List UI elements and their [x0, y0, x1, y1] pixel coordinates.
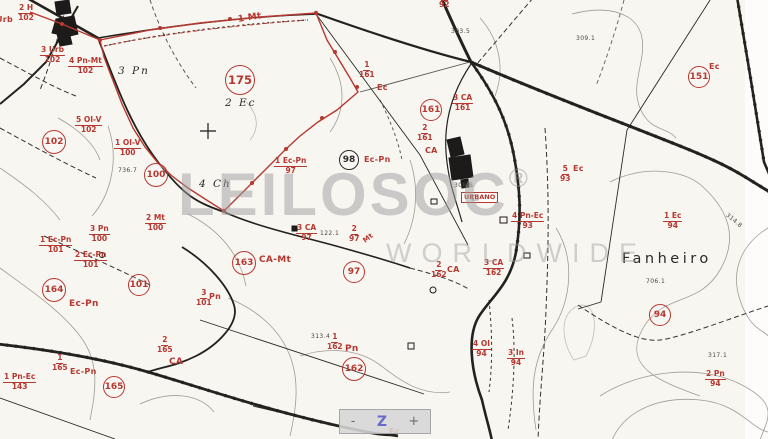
- map-label: 303.5: [451, 29, 470, 35]
- zoom-control: - Z +: [339, 409, 431, 434]
- crop-fraction-label: 4 OI94: [472, 340, 491, 358]
- crop-fraction-label: 192: [439, 0, 449, 9]
- map-label: 309.1: [576, 36, 595, 42]
- parcel-circle-165: 165: [103, 376, 125, 398]
- map-label: 2 Ec: [225, 98, 257, 109]
- parcel-circle-94: 94: [649, 304, 671, 326]
- zoom-out-button[interactable]: -: [345, 415, 362, 428]
- crop-fraction-label: 3 Pn100: [89, 225, 110, 243]
- map-label: 706.1: [646, 279, 665, 285]
- crop-fraction-label: 1 OI-V100: [114, 139, 141, 157]
- map-label: 736.7: [118, 168, 137, 174]
- parcel-circle-163: 163: [232, 251, 256, 275]
- crop-fraction-label: 4 Pn-Mt102: [68, 57, 103, 75]
- parcel-circle-97: 97: [343, 261, 365, 283]
- map-label: Ec-Pn: [70, 368, 97, 376]
- parcel-circle-162: 162: [342, 357, 366, 381]
- map-label: Ec: [377, 84, 388, 92]
- map-label: Pn: [209, 293, 221, 301]
- parcel-circle-101: 101: [128, 274, 150, 296]
- crop-fraction-label: 2 Ec-Pn101: [74, 251, 107, 269]
- crop-fraction-label: 2 Pn94: [705, 370, 726, 388]
- crop-fraction-label: 3 Urb102: [40, 46, 65, 64]
- crop-fraction-label: 5 OI-V102: [75, 116, 102, 134]
- map-label: Ec: [573, 165, 584, 173]
- map-label: Ec: [709, 63, 720, 71]
- crop-fraction-label: 2 Mt100: [145, 214, 166, 232]
- parcel-circle-100: 100: [144, 163, 168, 187]
- crop-fraction-label: 1 Ec94: [663, 212, 682, 230]
- parcel-circle-102: 102: [42, 130, 66, 154]
- map-label: CA-Mt: [259, 256, 291, 265]
- map-label: 317.1: [708, 353, 727, 359]
- map-label: CA: [425, 147, 438, 155]
- parcel-circle-175: 175: [225, 65, 255, 95]
- parcel-circle-161: 161: [420, 99, 442, 121]
- map-label: CA: [169, 358, 183, 367]
- parcel-circle-164: 164: [42, 278, 66, 302]
- registered-mark: ®: [509, 163, 531, 193]
- map-viewport[interactable]: {"":""}: [0, 0, 768, 439]
- crop-fraction-label: 2 H102: [18, 4, 34, 22]
- crop-fraction-label: 1 Pn-Ec143: [3, 373, 36, 391]
- crop-fraction-label: 1161: [359, 61, 375, 79]
- crop-fraction-label: 3 In94: [507, 349, 525, 367]
- watermark-brand: LEILOSOC®: [178, 160, 531, 229]
- zoom-reset-button[interactable]: Z: [371, 415, 393, 429]
- map-label: Ec-Pn: [69, 300, 99, 309]
- map-label: Pn: [345, 345, 359, 354]
- parcel-circle-151: 151: [688, 66, 710, 88]
- map-label: 3 Pn: [118, 66, 150, 77]
- map-label: Urb: [0, 16, 13, 24]
- crop-fraction-label: 3 CA161: [452, 94, 473, 112]
- crop-fraction-label: 2165: [157, 336, 173, 354]
- watermark-tagline: WORLDWIDE: [386, 238, 647, 269]
- crop-fraction-label: 2161: [417, 124, 433, 142]
- crop-fraction-label: 1 Ec-Pn101: [39, 236, 72, 254]
- map-label: 122.1: [320, 231, 339, 237]
- survey-cross: [200, 123, 216, 139]
- map-label: 313.4: [311, 334, 330, 340]
- crop-fraction-label: 1165: [52, 354, 68, 372]
- zoom-in-button[interactable]: +: [402, 415, 425, 428]
- crop-fraction-label: 593: [560, 165, 570, 183]
